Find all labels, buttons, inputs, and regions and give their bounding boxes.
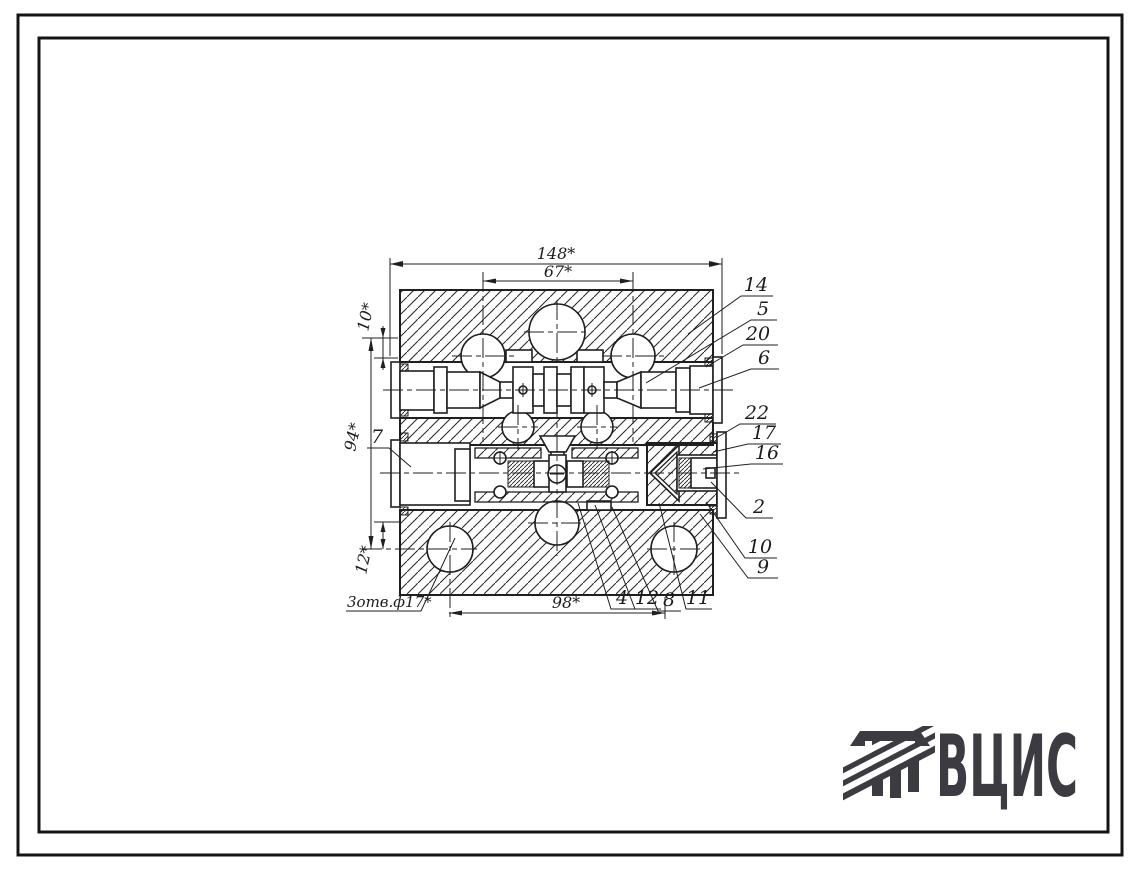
dim-bottom-width: 98* — [449, 593, 665, 619]
arrowhead — [709, 261, 722, 267]
arrowhead — [483, 279, 496, 284]
valve-block-section — [362, 272, 740, 618]
dim-left-offset-top: 10* — [353, 301, 398, 370]
callout-label: 16 — [755, 442, 779, 464]
cap-insert — [455, 449, 470, 501]
end-plate — [717, 432, 726, 518]
dim-left-offset-top-label: 10* — [353, 301, 377, 333]
seal-ring — [705, 414, 713, 422]
dim-bottom-width-label: 98* — [552, 593, 580, 612]
dim-left-total-label: 94* — [340, 421, 364, 453]
logo-icon — [838, 711, 938, 803]
callout-label: 5 — [757, 298, 769, 320]
holes-note-label: 3отв.ф17* — [347, 593, 432, 611]
dim-left-total: 94* — [340, 338, 373, 549]
arrowhead — [620, 279, 633, 284]
callout-label: 6 — [758, 347, 770, 369]
valve-seat — [567, 461, 583, 487]
callout-label: 22 — [744, 402, 769, 424]
callout-label: 4 — [615, 587, 628, 609]
drawing-canvas: 148* 67* 10* 94* 12* — [0, 0, 1139, 869]
callout-label: 9 — [757, 556, 769, 578]
callout-label: 20 — [745, 323, 770, 345]
screw-head — [494, 486, 506, 498]
thread-section — [508, 461, 534, 487]
dimension-line — [374, 522, 400, 549]
arrowhead — [390, 261, 403, 267]
arrowhead — [449, 611, 462, 616]
callout-label: 14 — [744, 274, 768, 296]
arrowhead — [381, 539, 386, 549]
screw-head — [606, 486, 618, 498]
dim-top-inner-label: 67* — [544, 262, 572, 281]
arrowhead — [369, 338, 374, 351]
callout-label: 11 — [686, 587, 710, 609]
logo: ВЦИС — [838, 711, 1078, 817]
seal-ring — [400, 507, 408, 515]
arrowhead — [381, 328, 386, 338]
sleeve-wall — [475, 448, 541, 458]
dim-top-total-label: 148* — [537, 244, 576, 263]
thread-section — [583, 461, 609, 487]
logo-text: ВЦИС — [936, 717, 1078, 817]
callout-label: 10 — [748, 536, 772, 558]
arrowhead — [381, 522, 386, 532]
callout-label: 7 — [371, 426, 384, 448]
callout-label: 2 — [752, 496, 765, 518]
recess — [577, 350, 603, 362]
scanned-drawing-page: 148* 67* 10* 94* 12* — [0, 0, 1139, 869]
callout-label: 8 — [663, 589, 675, 611]
callout-label: 17 — [752, 422, 777, 444]
sleeve-wall — [572, 448, 638, 458]
seal-ring — [400, 433, 408, 441]
arrowhead — [381, 358, 386, 368]
dim-top-inner: 67* — [483, 262, 633, 284]
dim-left-offset-bottom-label: 12* — [351, 544, 375, 576]
